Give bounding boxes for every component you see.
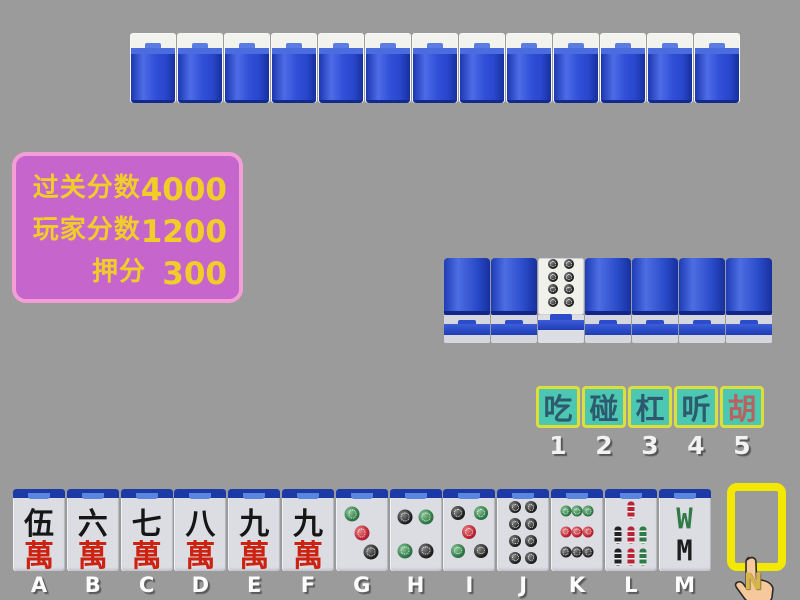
wan-number-char: 九 (228, 510, 280, 540)
ting-button[interactable]: 听 (674, 386, 718, 428)
opponent-tile-back (506, 33, 552, 103)
peng-button[interactable]: 碰 (582, 386, 626, 428)
tile-side-body (726, 258, 772, 315)
chi-button[interactable]: 吃 (536, 386, 580, 428)
tile-face (551, 498, 603, 571)
opponent-tile-back (647, 33, 693, 103)
tile-back-body (366, 54, 410, 103)
meld-tile-back (632, 258, 678, 343)
green-circle-pip (345, 507, 360, 522)
red-circle-pip (571, 526, 582, 537)
tile-back-body (319, 54, 363, 103)
hand-tile-9-wan[interactable]: 九萬 (228, 489, 280, 571)
hand-tile-letter-E: E (228, 573, 280, 597)
tile-back-body (131, 54, 175, 103)
black-circle-pip (509, 535, 521, 547)
peng-button-number: 2 (582, 431, 626, 460)
hand-tile-letter-G: G (336, 573, 388, 597)
hand-tile-letter-M: M (659, 573, 711, 597)
hand-tile-letter-J: J (497, 573, 549, 597)
score-row-player: 玩家分数 1200 (16, 209, 239, 246)
hand-tile-letter-I: I (443, 573, 495, 597)
tile-face (443, 498, 495, 571)
bamboo-stick (640, 526, 647, 543)
wan-char: 萬 (228, 542, 280, 572)
wan-number-char: 六 (67, 510, 119, 540)
red-circle-pip (583, 526, 594, 537)
gang-button-number: 3 (628, 431, 672, 460)
green-circle-pip (451, 544, 465, 558)
player-score-label: 玩家分数 (16, 209, 141, 246)
bamboo-zigzag-top: W (659, 505, 711, 534)
opponent-tile-back (694, 33, 740, 103)
tile-back-body (507, 54, 551, 103)
meld-tile-8-circles (538, 258, 584, 343)
tile-back-body (178, 54, 222, 103)
green-circle-pip (474, 506, 488, 520)
meld-tile-back (585, 258, 631, 343)
black-circle-pip (548, 259, 558, 269)
black-circle-pip (571, 547, 582, 558)
black-circle-pip (509, 552, 521, 564)
tile-face (336, 498, 388, 571)
hand-tile-letter-H: H (390, 573, 442, 597)
hand-tile-letter-B: B (67, 573, 119, 597)
black-circle-pip (560, 547, 571, 558)
next-slot-label: N (741, 570, 765, 595)
opponent-tile-back (459, 33, 505, 103)
opponent-tile-back (318, 33, 364, 103)
tile-side-blue-stripe (585, 324, 631, 335)
tile-side-body (632, 258, 678, 315)
tile-face-bottom (538, 315, 584, 343)
tile-back-body (554, 54, 598, 103)
wan-char: 萬 (13, 542, 65, 572)
black-circle-pip (548, 297, 558, 307)
hand-tile-letter-A: A (13, 573, 65, 597)
action-number-row: 12345 (536, 431, 764, 460)
wan-number-char: 七 (121, 510, 173, 540)
hand-tile-9-circles[interactable] (551, 489, 603, 571)
wan-char: 萬 (174, 542, 226, 572)
tile-face (605, 498, 657, 571)
hand-tile-7-bamboo[interactable] (605, 489, 657, 571)
bamboo-stick (640, 549, 647, 566)
opponent-tile-row (130, 33, 740, 103)
hand-tile-7-wan[interactable]: 七萬 (121, 489, 173, 571)
black-circle-pip (548, 284, 558, 294)
red-circle-pip (354, 526, 369, 541)
tile-side-stripe (585, 335, 631, 343)
opponent-tile-back (130, 33, 176, 103)
hand-tile-row: 伍萬六萬七萬八萬九萬九萬WM (13, 489, 711, 571)
black-circle-pip (525, 501, 537, 513)
black-circle-pip (583, 547, 594, 558)
hand-tile-8-circles[interactable] (497, 489, 549, 571)
black-circle-pip (564, 284, 574, 294)
tile-side-body (679, 258, 725, 315)
hand-tile-letter-D: D (174, 573, 226, 597)
pass-score-label: 过关分数 (16, 167, 141, 204)
black-circle-pip (525, 552, 537, 564)
pass-score-value: 4000 (141, 172, 239, 208)
tile-face (538, 258, 584, 315)
hand-tile-5-wan[interactable]: 伍萬 (13, 489, 65, 571)
hu-button[interactable]: 胡 (720, 386, 764, 428)
tile-face (497, 498, 549, 571)
tile-face: 八萬 (174, 498, 226, 571)
red-circle-pip (560, 526, 571, 537)
opponent-tile-back (412, 33, 458, 103)
black-circle-pip (418, 543, 433, 558)
tile-side-blue-stripe (679, 324, 725, 335)
hand-tile-8-bamboo[interactable]: WM (659, 489, 711, 571)
tile-side-stripe (726, 335, 772, 343)
tile-back-body (648, 54, 692, 103)
black-circle-pip (364, 545, 379, 560)
chi-button-number: 1 (536, 431, 580, 460)
meld-tile-back (679, 258, 725, 343)
bamboo-zigzag-bottom: M (659, 537, 711, 566)
hand-tile-3-circles[interactable] (336, 489, 388, 571)
player-score-value: 1200 (141, 214, 239, 250)
bamboo-stick (615, 526, 622, 543)
hand-letter-row: ABCDEFGHIJKLM (13, 573, 711, 597)
tile-side-stripe (632, 335, 678, 343)
black-circle-pip (548, 272, 558, 282)
tile-side-blue-stripe (491, 324, 537, 335)
tile-face-blue-stripe (538, 320, 584, 330)
tile-side-blue-stripe (632, 324, 678, 335)
green-circle-pip (571, 506, 582, 517)
green-circle-pip (398, 543, 413, 558)
tile-side-blue-stripe (726, 324, 772, 335)
tile-face (390, 498, 442, 571)
meld-tile-row (444, 258, 772, 343)
tile-back-body (601, 54, 645, 103)
bamboo-stick (627, 526, 634, 543)
green-circle-pip (560, 506, 571, 517)
tile-face: 七萬 (121, 498, 173, 571)
tile-face: 伍萬 (13, 498, 65, 571)
score-row-pass: 过关分数 4000 (16, 167, 239, 204)
black-circle-pip (474, 544, 488, 558)
tile-side-body (491, 258, 537, 315)
wan-number-char: 伍 (13, 510, 65, 540)
black-circle-pip (564, 272, 574, 282)
hu-button-number: 5 (720, 431, 764, 460)
opponent-tile-back (271, 33, 317, 103)
hand-tile-5-circles[interactable] (443, 489, 495, 571)
opponent-tile-back (600, 33, 646, 103)
hand-tile-9-wan[interactable]: 九萬 (282, 489, 334, 571)
tile-back-body (272, 54, 316, 103)
black-circle-pip (451, 506, 465, 520)
tile-side-stripe (679, 335, 725, 343)
black-circle-pip (509, 518, 521, 530)
black-circle-pip (525, 518, 537, 530)
black-circle-pip (525, 535, 537, 547)
action-button-row: 吃碰杠听胡 (536, 386, 764, 428)
tile-back-body (225, 54, 269, 103)
ting-button-number: 4 (674, 431, 718, 460)
black-circle-pip (564, 259, 574, 269)
mahjong-game-screen: 过关分数 4000 玩家分数 1200 押分 300 吃碰杠听胡 12345 伍… (0, 0, 800, 600)
bamboo-stick (627, 549, 634, 566)
hand-tile-4-circles[interactable] (390, 489, 442, 571)
bamboo-stick (627, 502, 634, 519)
gang-button[interactable]: 杠 (628, 386, 672, 428)
bet-score-label: 押分 (16, 251, 146, 288)
tile-side-stripe (444, 335, 490, 343)
green-circle-pip (583, 506, 594, 517)
tile-back-body (695, 54, 739, 103)
hand-tile-8-wan[interactable]: 八萬 (174, 489, 226, 571)
red-circle-pip (462, 525, 476, 539)
tile-side-stripe (491, 335, 537, 343)
tile-back-body (460, 54, 504, 103)
black-circle-pip (398, 509, 413, 524)
opponent-tile-back (177, 33, 223, 103)
opponent-tile-back (365, 33, 411, 103)
wan-number-char: 八 (174, 510, 226, 540)
meld-tile-back (726, 258, 772, 343)
hand-tile-letter-C: C (121, 573, 173, 597)
tile-face: 九萬 (282, 498, 334, 571)
meld-tile-back (444, 258, 490, 343)
hand-tile-letter-L: L (605, 573, 657, 597)
green-circle-pip (418, 509, 433, 524)
tile-side-body (585, 258, 631, 315)
tile-side-body (444, 258, 490, 315)
score-panel: 过关分数 4000 玩家分数 1200 押分 300 (12, 152, 243, 303)
wan-char: 萬 (121, 542, 173, 572)
hand-tile-letter-F: F (282, 573, 334, 597)
hand-tile-6-wan[interactable]: 六萬 (67, 489, 119, 571)
tile-side-blue-stripe (444, 324, 490, 335)
bamboo-stick (615, 549, 622, 566)
tile-back-body (413, 54, 457, 103)
opponent-tile-back (224, 33, 270, 103)
hand-tile-letter-K: K (551, 573, 603, 597)
opponent-tile-back (553, 33, 599, 103)
score-row-bet: 押分 300 (16, 251, 239, 288)
meld-tile-back (491, 258, 537, 343)
tile-face: WM (659, 498, 711, 571)
wan-number-char: 九 (282, 510, 334, 540)
wan-char: 萬 (67, 542, 119, 572)
black-circle-pip (509, 501, 521, 513)
black-circle-pip (564, 297, 574, 307)
tile-face: 六萬 (67, 498, 119, 571)
tile-face: 九萬 (228, 498, 280, 571)
wan-char: 萬 (282, 542, 334, 572)
bet-score-value: 300 (146, 256, 239, 292)
